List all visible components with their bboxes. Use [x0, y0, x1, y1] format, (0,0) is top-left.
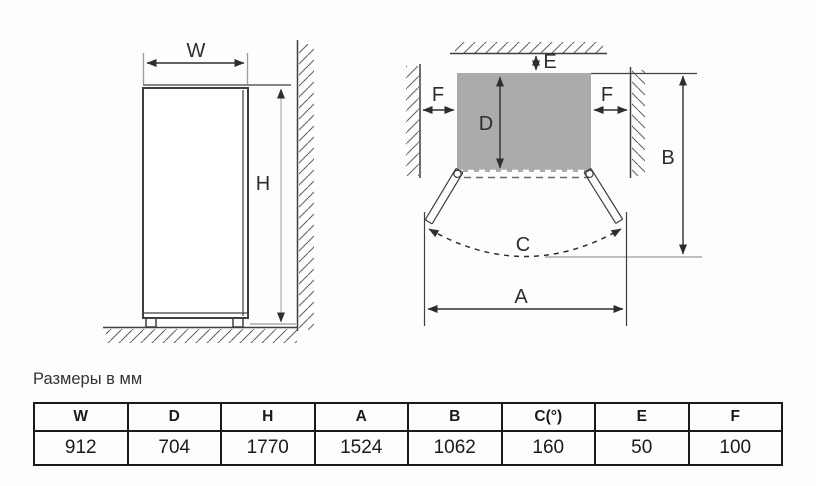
dimensions-table: W D H A B C(°) E F 912 704 1770 1524 106…: [33, 402, 783, 466]
fridge-top-outline: [457, 73, 591, 172]
front-view: W H: [103, 40, 314, 343]
table-header-cell-c: C(°): [502, 403, 596, 431]
rear-gap-dimension-label: E: [543, 51, 556, 73]
table-value-cell-d: 704: [128, 431, 222, 465]
depth-dimension-label: D: [479, 113, 493, 135]
table-value-cell-f: 100: [689, 431, 783, 465]
fridge-front-outline: [143, 88, 248, 318]
units-caption: Размеры в мм: [33, 370, 142, 389]
left-wall-hatching: [406, 66, 419, 176]
open-width-dimension-label: A: [514, 286, 528, 308]
table-value-cell-b: 1062: [408, 431, 502, 465]
table-value-cell-c: 160: [502, 431, 596, 465]
table-header-row: W D H A B C(°) E F: [34, 403, 782, 431]
table-header-cell-a: A: [315, 403, 409, 431]
table-header-cell-h: H: [221, 403, 315, 431]
height-dimension-label: H: [256, 173, 270, 195]
door-angle-label: C: [516, 234, 530, 256]
table-header-cell-e: E: [595, 403, 689, 431]
width-dimension-label: W: [187, 40, 206, 62]
table-header-cell-d: D: [128, 403, 222, 431]
table-value-row: 912 704 1770 1524 1062 160 50 100: [34, 431, 782, 465]
table-header-cell-w: W: [34, 403, 128, 431]
dimension-drawing-page: W H E D: [0, 0, 816, 486]
floor-hatching: [106, 329, 297, 343]
table-value-cell-e: 50: [595, 431, 689, 465]
table-value-cell-a: 1524: [315, 431, 409, 465]
fridge-foot-right: [233, 318, 243, 327]
table-header-cell-b: B: [408, 403, 502, 431]
wall-hatching-right: [299, 44, 314, 330]
table-value-cell-w: 912: [34, 431, 128, 465]
right-wall-hatching: [632, 70, 645, 176]
table-value-cell-h: 1770: [221, 431, 315, 465]
fridge-foot-left: [146, 318, 156, 327]
open-depth-dimension-label: B: [661, 147, 674, 169]
top-view: E D F F B C: [406, 42, 702, 326]
left-door-open: [425, 168, 463, 224]
dimensions-diagram: W H E D: [0, 0, 816, 362]
side-gap-right-label: F: [601, 84, 613, 106]
right-door-open: [584, 168, 623, 223]
rear-wall-hatching: [455, 42, 603, 53]
table-header-cell-f: F: [689, 403, 783, 431]
side-gap-left-label: F: [432, 84, 444, 106]
